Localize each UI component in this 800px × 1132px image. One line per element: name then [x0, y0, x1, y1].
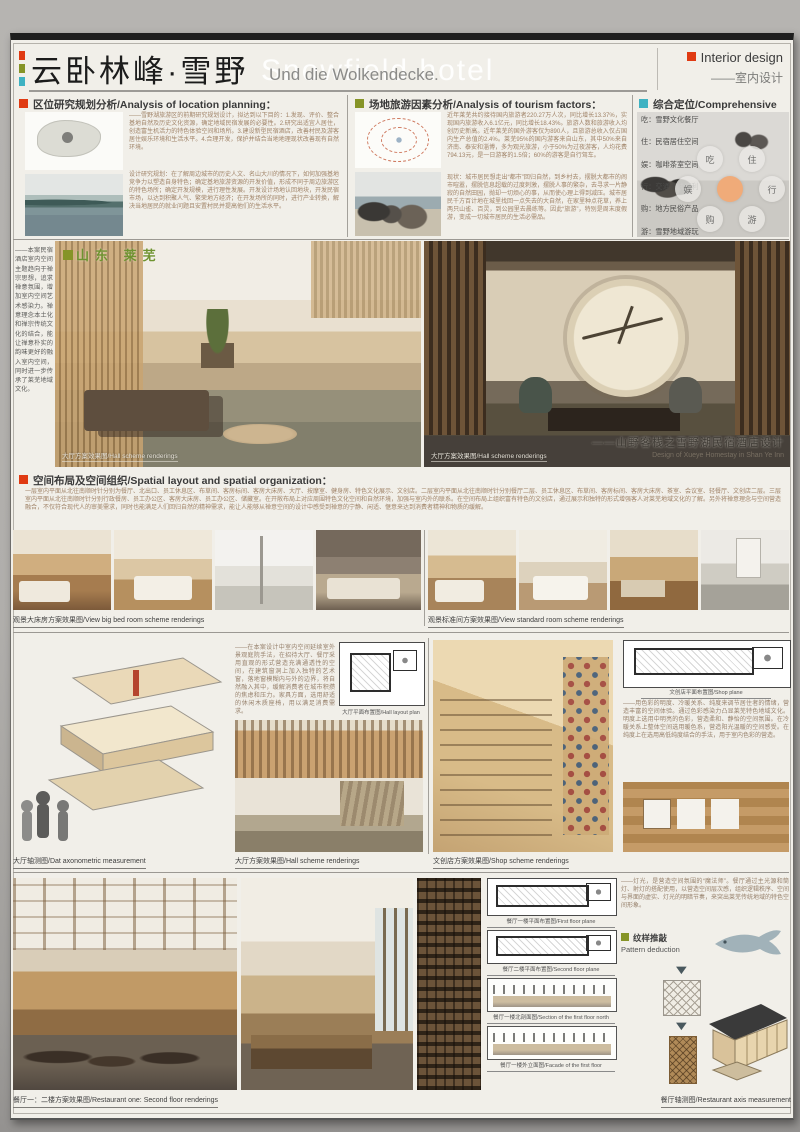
page-subtitle-german: Und die Wolkendecke.: [269, 65, 439, 85]
row-divider: [13, 632, 789, 633]
spatial-paragraph: 一层室内平面从北往南顺时针分别为餐厅、北出口、员工休息区、布草间、客房标间、客房…: [25, 488, 781, 512]
restaurant-section-drawing: [487, 978, 617, 1012]
sofa-shape: [84, 390, 208, 431]
bedroom-render: [13, 530, 111, 610]
shop-plan-caption: 文创店平面布置图/Shop plane: [641, 688, 771, 699]
comp-item-shop: 购：地方民俗产品: [641, 204, 699, 213]
olive-square-icon: [621, 933, 629, 941]
red-square-icon: [687, 52, 696, 61]
column-divider: [347, 95, 348, 237]
restaurant-lattice-detail: [417, 878, 481, 1090]
olive-square-icon: [355, 99, 364, 108]
restaurant-render-2: [241, 878, 413, 1090]
tourism-paragraph-1: 近年莱芜共约接待国内旅游者220.27万人次，同比增长13.37%，实现国内旅游…: [447, 112, 627, 160]
section-location-header: 区位研究规划分析/Analysis of location planning：: [19, 97, 276, 112]
pattern-deduction-header: 纹样推敲: [621, 932, 667, 944]
comp-item-tour: 游：雪野地域游玩: [641, 227, 699, 236]
arrow-down-icon: ▼: [672, 1018, 690, 1033]
restaurant-second-floor-plan: [487, 930, 617, 964]
restaurant-render-1: [13, 878, 237, 1090]
bathroom-render: [215, 530, 313, 610]
section-tourism-header: 场地旅游因素分析/Analysis of tourism factors：: [355, 97, 602, 112]
project-title-en: Design of Xueye Homestay in Shan Ye Inn: [592, 452, 784, 459]
hall-layout-plan: [339, 642, 425, 706]
lake-photo: [25, 174, 123, 236]
row-divider: [13, 239, 789, 240]
section-spatial-title: 空间布局及空间组织/Spatial layout and spatial org…: [33, 475, 332, 487]
second-floor-plan-caption: 餐厅二楼平面布置图/Second floor plane: [487, 965, 615, 976]
region-label-text: 山东 莱芜: [76, 248, 162, 263]
standard-room-caption: 观景标准间方案效果图/View standard room scheme ren…: [428, 615, 624, 628]
section-location-title: 区位研究规划分析/Analysis of location planning：: [33, 99, 276, 111]
section-spatial-header: 空间布局及空间组织/Spatial layout and spatial org…: [19, 473, 332, 488]
circle-shop: 购: [697, 206, 723, 232]
region-label: 山东 莱芜: [63, 245, 162, 264]
first-floor-plan-caption: 餐厅一楼平面布置图/First floor plane: [487, 917, 615, 928]
hall-left-caption: 大厅方案效果图/Hall scheme renderings: [62, 450, 178, 462]
comp-item-eat: 吃：雪野文化餐厅: [641, 115, 699, 124]
restaurant-renders-caption: 餐厅一：二楼方案效果图/Restaurant one: Second floor…: [13, 1095, 218, 1108]
header-tag-en-label: Interior design: [701, 50, 783, 65]
hall-axon-caption: 大厅轴测图/Dat axonometric measurement: [13, 856, 146, 869]
bedroom-render: [114, 530, 212, 610]
comp-item-fun: 娱：咖啡茶室空间: [641, 160, 699, 169]
section-drawing-caption: 餐厅一楼北剖面图/Section of the first floor nort…: [487, 1013, 615, 1024]
tourists-photo: [355, 172, 441, 236]
diamond-pattern-swatch: [663, 980, 701, 1016]
page-title: 云卧林峰·雪野: [31, 46, 248, 91]
standard-room-render: [519, 530, 607, 610]
comp-item-stay: 住：民宿居住空间: [641, 137, 699, 146]
header-divider: [657, 48, 658, 90]
header-tag-en: Interior design: [687, 50, 783, 65]
hall-plan-caption: 大厅平面布置图/Hall layout plan: [331, 708, 431, 718]
fish-sketch: [711, 926, 791, 965]
pattern-subtitle: Pattern deduction: [621, 945, 680, 954]
presentation-board: Snowfield hotel 云卧林峰·雪野 Und die Wolkende…: [10, 33, 794, 1120]
shandong-map-image: [25, 112, 123, 170]
page: { "header": { "title_cn": "云卧林峰·雪野", "ti…: [0, 0, 800, 1132]
location-paragraph-1: ——雪野湖旅游区的前期研究规划设计，拟达到以下目的：1.发现、评价、整合基地自然…: [129, 112, 339, 152]
hall-render-left: 大厅方案效果图/Hall scheme renderings: [55, 241, 421, 467]
shop-wall-render: [623, 782, 789, 852]
tourism-paragraph-2: 现状：城市居民想走出“都市”回归自然，到乡村去，摆脱大都市的闹市喧嚣，摆脱信息超…: [447, 174, 627, 222]
title-square-olive: [19, 64, 25, 73]
shop-render-caption: 文创店方案效果图/Shop scheme renderings: [433, 856, 569, 869]
header-tag-cn: ——室内设计: [711, 69, 783, 86]
shop-layout-plan: [623, 640, 791, 688]
location-paragraph-2: 设计研究规划：在了解周边城市的历史人文、名山大川的情况下，如何加强基地竞争力以塑…: [129, 171, 339, 211]
red-square-icon: [19, 99, 28, 108]
circle-fun: 娱: [675, 176, 701, 202]
standard-room-render: [701, 530, 789, 610]
lighting-concept-text: ——灯光，是营造空间氛围的“魔法师”。餐厅通过主光源和筒灯、射灯的搭配使用，以营…: [621, 878, 789, 910]
hall-right-caption: 大厅方案效果图/Hall scheme renderings: [431, 450, 547, 462]
big-bed-room-caption: 观景大床房方案效果图/View big bed room scheme rend…: [13, 615, 204, 628]
column-divider: [428, 638, 429, 854]
tourism-network-map: [355, 112, 441, 168]
restaurant-axon-svg: [703, 986, 791, 1086]
cyan-square-icon: [639, 99, 648, 108]
round-table-shape: [223, 424, 296, 444]
axonometric-svg: [13, 640, 231, 852]
facade-drawing-caption: 餐厅一楼外立面图/Facade of the first floor: [487, 1061, 615, 1072]
shop-stair-render: [433, 640, 613, 852]
section-comprehensive-header: 综合定位/Comprehensive: [639, 97, 777, 112]
red-square-icon: [19, 475, 28, 484]
header-underline: [29, 90, 647, 92]
color-concept-text: ——用色彩的明度、冷暖关系、纯度来调节居住者的情绪，营造丰富的空间体验。通过色彩…: [623, 700, 789, 740]
hall-render-caption: 大厅方案效果图/Hall scheme renderings: [235, 856, 359, 869]
column-divider: [424, 530, 425, 626]
pattern-title: 纹样推敲: [633, 933, 667, 943]
circle-tour: 游: [739, 206, 765, 232]
standard-room-render: [610, 530, 698, 610]
circle-eat: 吃: [697, 146, 723, 172]
low-table-shape: [548, 408, 680, 431]
project-title-cn: ——山野客栈之雪野湖民宿酒店设计: [592, 434, 784, 450]
circle-center: [717, 176, 743, 202]
restaurant-first-floor-plan: [487, 878, 617, 916]
circle-travel: 行: [759, 176, 785, 202]
circle-stay: 住: [739, 146, 765, 172]
green-square-icon: [63, 250, 73, 260]
wood-lattice-swatch: [669, 1036, 697, 1084]
plant-shape: [201, 309, 234, 368]
figure-shape: [669, 377, 702, 413]
column-divider: [632, 95, 633, 237]
courtyard-concept-text: ——在本案设计中室内空间延续室外景观庭院手法，在招待大厅、餐厅采用直观的形式营造…: [235, 644, 335, 716]
concept-side-note: ——本案民宿酒店室内空间主题趋向于禅宗思想，追求禅意氛围，增加室内空间艺术感染力…: [15, 246, 53, 395]
restaurant-axon-caption: 餐厅轴测图/Restaurant axis measurement: [661, 1095, 791, 1108]
project-title-overlay: ——山野客栈之雪野湖民宿酒店设计 Design of Xueye Homesta…: [592, 434, 784, 459]
restaurant-facade-drawing: [487, 1026, 617, 1060]
title-square-red: [19, 51, 25, 60]
arrow-down-icon: ▼: [672, 962, 690, 977]
figure-shape: [519, 377, 552, 413]
moon-circle-shape: [567, 279, 685, 397]
title-square-cyan: [19, 77, 25, 86]
hall-render-small: [235, 720, 423, 852]
hall-axonometric-drawing: [13, 640, 231, 852]
bedroom-render: [316, 530, 421, 610]
row-divider: [13, 872, 789, 873]
section-comprehensive-title: 综合定位/Comprehensive: [653, 99, 777, 111]
fish-svg: [711, 926, 791, 960]
section-tourism-title: 场地旅游因素分析/Analysis of tourism factors：: [369, 99, 602, 111]
standard-room-render: [428, 530, 516, 610]
tea-room-render-right: 大厅方案效果图/Hall scheme renderings ——山野客栈之雪野…: [424, 241, 790, 467]
restaurant-axonometric-drawing: [703, 986, 791, 1091]
